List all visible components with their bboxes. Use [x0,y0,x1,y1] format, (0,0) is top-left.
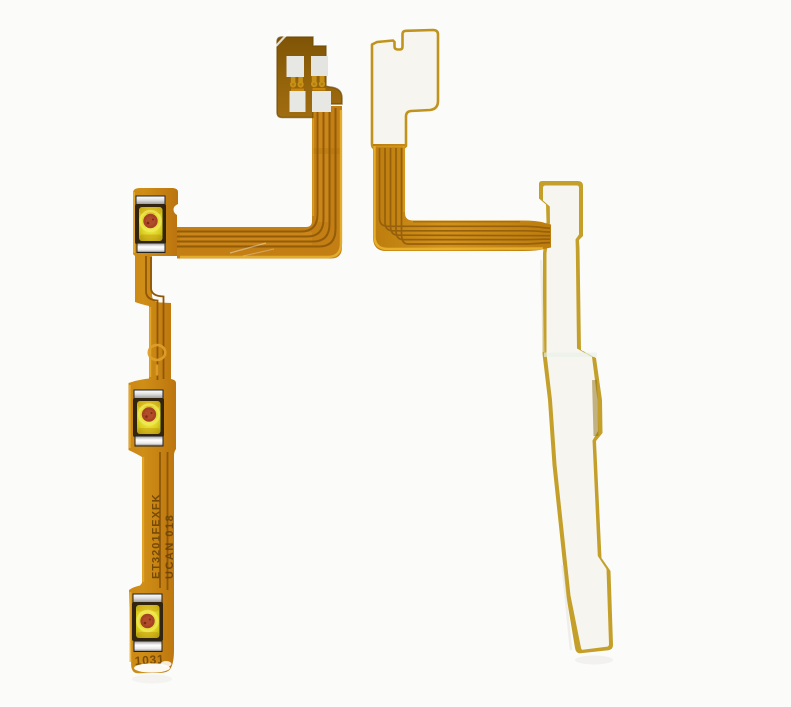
svg-text:UCAN 018: UCAN 018 [164,514,176,579]
svg-text:ET3201FEXFK: ET3201FEXFK [151,493,163,579]
